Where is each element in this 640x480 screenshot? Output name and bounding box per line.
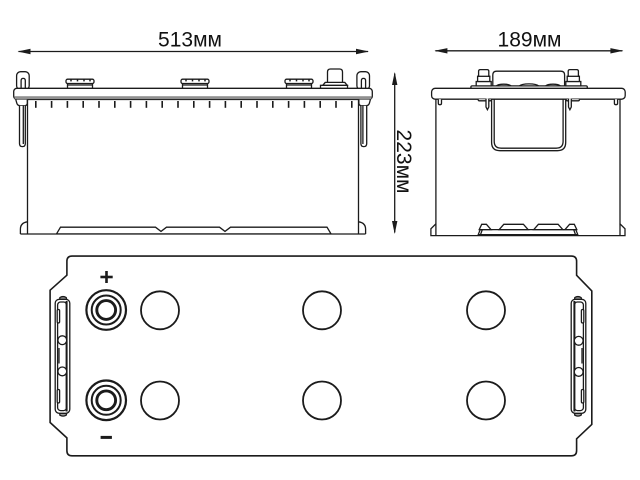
svg-text:223мм: 223мм bbox=[392, 130, 415, 194]
svg-text:189мм: 189мм bbox=[498, 29, 562, 52]
svg-text:513мм: 513мм bbox=[158, 29, 222, 52]
